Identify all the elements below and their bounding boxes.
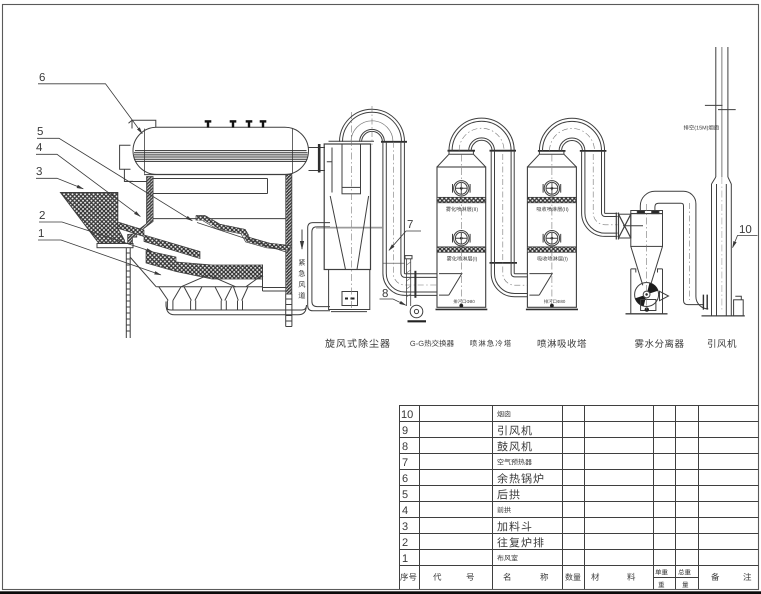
svg-text:道: 道 — [298, 291, 305, 300]
svg-text:余热锅炉: 余热锅炉 — [497, 473, 545, 486]
svg-text:1: 1 — [38, 228, 44, 240]
svg-text:排污口Φ80: 排污口Φ80 — [544, 299, 566, 304]
svg-text:8: 8 — [402, 441, 408, 453]
svg-text:吸收喷淋层(I): 吸收喷淋层(I) — [537, 256, 568, 263]
svg-text:2: 2 — [402, 537, 408, 549]
svg-text:备: 备 — [711, 572, 720, 582]
svg-text:8: 8 — [382, 288, 388, 300]
svg-text:雾化喷淋层(II): 雾化喷淋层(II) — [446, 206, 479, 213]
svg-text:称: 称 — [540, 572, 549, 582]
svg-text:前拱: 前拱 — [497, 507, 511, 515]
svg-text:9: 9 — [402, 425, 408, 437]
svg-text:总重: 总重 — [678, 569, 692, 577]
svg-text:重: 重 — [658, 581, 665, 589]
svg-text:6: 6 — [39, 72, 45, 84]
svg-text:2: 2 — [39, 210, 45, 222]
svg-text:空气预热器: 空气预热器 — [497, 459, 532, 467]
svg-text:6: 6 — [402, 473, 408, 485]
svg-text:急: 急 — [298, 269, 305, 278]
svg-text:雾化喷淋层(I): 雾化喷淋层(I) — [447, 256, 478, 263]
svg-text:排空(15M)烟囱: 排空(15M)烟囱 — [684, 125, 720, 132]
svg-text:风: 风 — [298, 280, 305, 289]
svg-text:注: 注 — [743, 572, 752, 582]
svg-text:4: 4 — [402, 505, 408, 517]
svg-text:序号: 序号 — [400, 572, 417, 582]
svg-text:旋风式除尘器: 旋风式除尘器 — [325, 338, 391, 350]
svg-text:加料斗: 加料斗 — [497, 521, 533, 534]
svg-text:10: 10 — [401, 409, 413, 421]
svg-text:料: 料 — [627, 572, 636, 582]
svg-text:紧: 紧 — [298, 258, 305, 267]
svg-text:5: 5 — [37, 126, 43, 138]
svg-text:引风机: 引风机 — [707, 339, 737, 350]
svg-text:4: 4 — [36, 142, 43, 154]
svg-text:喷淋急冷塔: 喷淋急冷塔 — [470, 339, 513, 348]
svg-text:量: 量 — [682, 581, 689, 589]
svg-text:烟囱: 烟囱 — [497, 411, 511, 419]
svg-text:吸收喷淋层(II): 吸收喷淋层(II) — [536, 206, 569, 213]
svg-text:引风机: 引风机 — [497, 425, 533, 438]
svg-text:1: 1 — [402, 553, 408, 565]
svg-text:G-G热交换器: G-G热交换器 — [410, 339, 455, 348]
svg-text:雾水分离器: 雾水分离器 — [634, 338, 684, 350]
svg-text:材: 材 — [591, 572, 600, 582]
svg-text:名: 名 — [503, 572, 512, 582]
svg-text:往复炉排: 往复炉排 — [497, 537, 545, 550]
svg-text:10: 10 — [739, 224, 752, 236]
svg-text:5: 5 — [402, 489, 408, 501]
svg-text:数量: 数量 — [565, 573, 581, 582]
svg-text:喷淋吸收塔: 喷淋吸收塔 — [537, 339, 587, 350]
svg-text:鼓风机: 鼓风机 — [497, 441, 533, 454]
svg-text:3: 3 — [36, 166, 42, 178]
svg-text:7: 7 — [407, 219, 413, 231]
svg-text:单重: 单重 — [655, 569, 669, 577]
svg-text:后拱: 后拱 — [497, 489, 521, 502]
svg-text:7: 7 — [402, 457, 408, 469]
svg-text:3: 3 — [402, 521, 408, 533]
svg-text:布风室: 布风室 — [497, 555, 518, 563]
svg-text:排污口Φ80: 排污口Φ80 — [453, 299, 475, 304]
svg-text:号: 号 — [466, 572, 475, 582]
svg-text:代: 代 — [433, 572, 442, 582]
